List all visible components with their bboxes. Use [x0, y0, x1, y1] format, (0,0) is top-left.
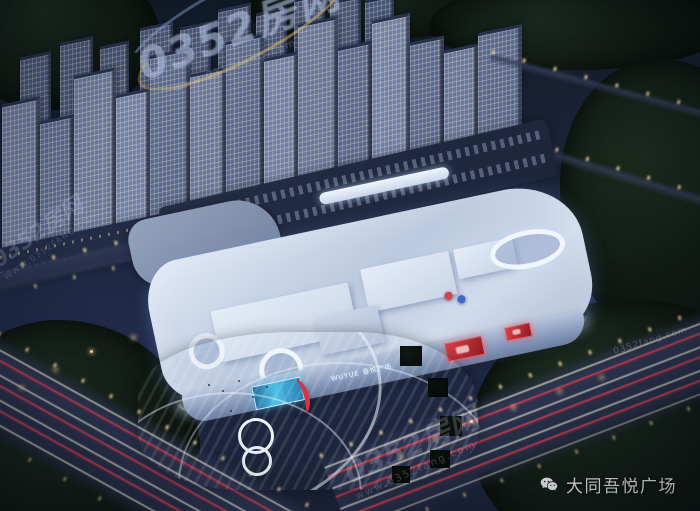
- plaza-tree: [440, 416, 462, 436]
- wechat-icon: [538, 474, 560, 496]
- roof-balloon-blue: [457, 294, 466, 303]
- plaza-tree: [428, 378, 448, 397]
- roof-volume: [360, 251, 457, 313]
- roof-balloon-red: [444, 291, 453, 300]
- plaza-crowd-dots: [208, 384, 210, 386]
- plaza-tree: [400, 346, 422, 366]
- street-lamp-glows: [90, 350, 93, 353]
- plaza-tree: [430, 450, 450, 468]
- night-aerial-rendering: WUYUE 吾悦广场 0352房网 www.0352fang.com 0352房…: [0, 0, 700, 511]
- entrance-plaza: [138, 332, 478, 490]
- plaza-ring-small: [242, 446, 272, 476]
- plaza-tree: [392, 466, 410, 483]
- wechat-badge: 大同吾悦广场: [538, 472, 677, 497]
- wechat-account-label: 大同吾悦广场: [566, 472, 677, 497]
- led-screen-red-small: [504, 322, 532, 341]
